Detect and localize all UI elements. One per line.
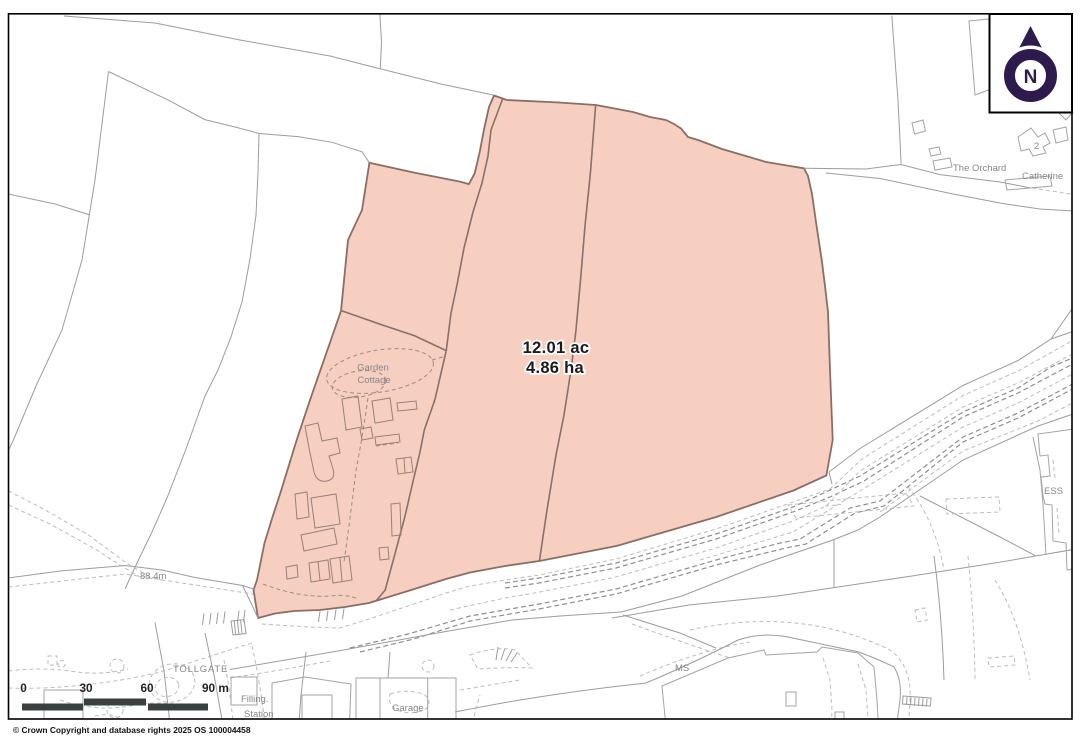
svg-text:12.01 ac: 12.01 ac	[523, 339, 590, 357]
svg-text:0: 0	[20, 681, 27, 695]
svg-text:90 m: 90 m	[202, 681, 229, 695]
svg-text:N: N	[1024, 67, 1038, 88]
svg-text:© Crown Copyright and database: © Crown Copyright and database rights 20…	[13, 725, 251, 735]
svg-text:Cottage: Cottage	[357, 375, 390, 386]
svg-text:30: 30	[79, 681, 93, 695]
svg-text:MS: MS	[675, 663, 689, 674]
svg-text:88.4m: 88.4m	[140, 571, 166, 582]
svg-text:Garden: Garden	[357, 363, 389, 374]
svg-text:TOLLGATE: TOLLGATE	[173, 664, 228, 675]
svg-text:Filling.: Filling.	[241, 694, 268, 705]
svg-text:Catherine: Catherine	[1022, 171, 1063, 182]
svg-text:Garage: Garage	[392, 703, 424, 714]
svg-text:The Orchard: The Orchard	[953, 163, 1006, 174]
svg-text:4.86 ha: 4.86 ha	[526, 359, 585, 377]
svg-text:2: 2	[1034, 141, 1039, 152]
svg-text:60: 60	[140, 681, 154, 695]
svg-text:ESS: ESS	[1044, 486, 1063, 497]
